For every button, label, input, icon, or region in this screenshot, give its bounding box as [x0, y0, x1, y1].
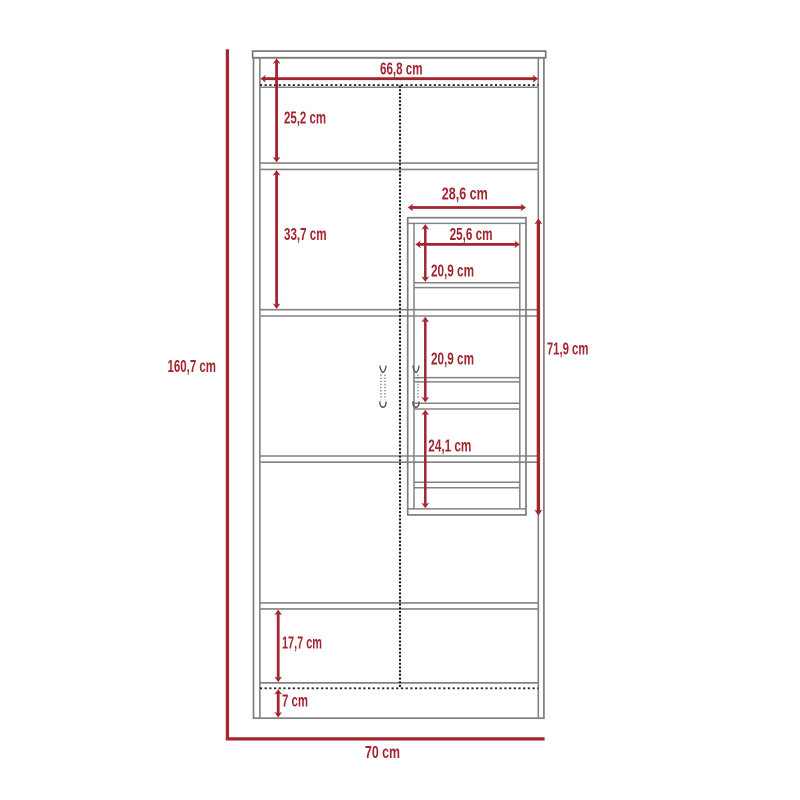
svg-text:7 cm: 7 cm — [282, 691, 308, 711]
svg-text:66,8 cm: 66,8 cm — [380, 59, 423, 79]
svg-text:20,9 cm: 20,9 cm — [431, 260, 474, 280]
svg-text:70 cm: 70 cm — [365, 742, 400, 762]
svg-text:24,1 cm: 24,1 cm — [428, 436, 471, 456]
svg-text:17,7 cm: 17,7 cm — [282, 632, 322, 652]
svg-text:20,9 cm: 20,9 cm — [431, 348, 474, 368]
svg-text:25,6 cm: 25,6 cm — [450, 224, 493, 244]
svg-text:33,7 cm: 33,7 cm — [284, 224, 327, 244]
svg-text:160,7 cm: 160,7 cm — [168, 356, 217, 376]
svg-text:71,9 cm: 71,9 cm — [547, 339, 589, 359]
svg-text:28,6 cm: 28,6 cm — [442, 183, 488, 203]
svg-text:25,2 cm: 25,2 cm — [284, 108, 326, 128]
